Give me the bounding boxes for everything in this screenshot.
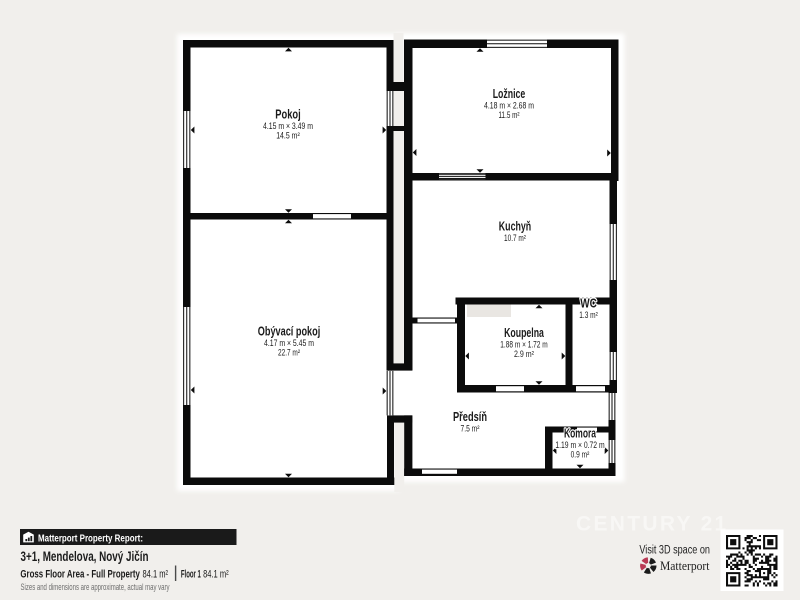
svg-text:84.1 m²: 84.1 m² xyxy=(143,569,169,581)
svg-text:4.17 m × 5.45 m: 4.17 m × 5.45 m xyxy=(264,338,314,348)
svg-text:7.5 m²: 7.5 m² xyxy=(461,424,480,434)
svg-text:1.19 m × 0.72 m: 1.19 m × 0.72 m xyxy=(555,440,604,450)
svg-text:Pokoj: Pokoj xyxy=(275,108,300,122)
svg-text:84.1 m²: 84.1 m² xyxy=(203,569,229,581)
svg-text:14.5 m²: 14.5 m² xyxy=(276,131,300,141)
svg-text:Kuchyň: Kuchyň xyxy=(499,220,531,234)
svg-text:WC: WC xyxy=(580,297,597,311)
svg-text:1.3 m²: 1.3 m² xyxy=(579,310,598,320)
svg-text:0.9 m²: 0.9 m² xyxy=(571,450,590,460)
svg-text:Koupelna: Koupelna xyxy=(504,326,545,340)
svg-text:Ložnice: Ložnice xyxy=(493,87,526,101)
svg-text:10.7 m²: 10.7 m² xyxy=(504,233,526,243)
svg-text:11.5 m²: 11.5 m² xyxy=(499,110,520,120)
svg-text:4.18 m × 2.68 m: 4.18 m × 2.68 m xyxy=(484,101,534,111)
svg-text:CENTURY 21: CENTURY 21 xyxy=(576,513,729,536)
svg-text:Obývací pokoj: Obývací pokoj xyxy=(258,325,321,339)
svg-text:22.7 m²: 22.7 m² xyxy=(278,348,300,358)
svg-text:2.9 m²: 2.9 m² xyxy=(514,349,534,359)
svg-text:Matterport: Matterport xyxy=(660,558,710,573)
svg-text:Předsíň: Předsíň xyxy=(453,410,487,424)
svg-text:3+1, Mendelova, Nový Jičín: 3+1, Mendelova, Nový Jičín xyxy=(21,549,149,564)
svg-text:Gross Floor Area - Full Proper: Gross Floor Area - Full Property xyxy=(20,569,140,581)
svg-text:Komora: Komora xyxy=(564,427,597,441)
svg-text:4.15 m × 3.49 m: 4.15 m × 3.49 m xyxy=(263,121,313,131)
svg-text:Visit 3D space on: Visit 3D space on xyxy=(639,545,710,557)
svg-text:Floor 1: Floor 1 xyxy=(181,569,201,581)
svg-text:Sizes and dimensions are appro: Sizes and dimensions are approximate, ac… xyxy=(21,582,170,593)
svg-text:Matterport Property Report:: Matterport Property Report: xyxy=(38,533,143,545)
svg-text:1.88 m × 1.72 m: 1.88 m × 1.72 m xyxy=(500,340,547,350)
